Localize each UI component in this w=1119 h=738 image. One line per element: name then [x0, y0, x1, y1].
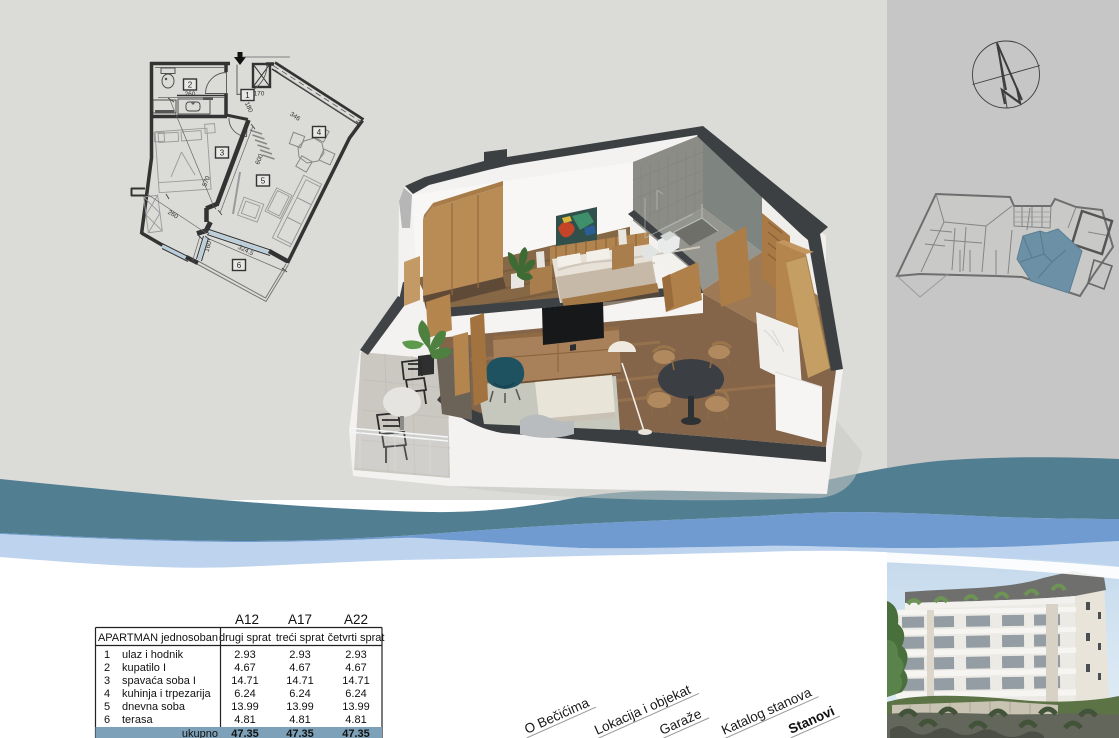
- svg-text:5: 5: [261, 177, 266, 186]
- svg-text:1: 1: [104, 649, 110, 661]
- svg-text:3: 3: [104, 675, 110, 687]
- svg-text:četvrti sprat: četvrti sprat: [328, 632, 385, 644]
- svg-text:13.99: 13.99: [231, 701, 259, 713]
- svg-text:6.24: 6.24: [234, 688, 255, 700]
- svg-text:4.67: 4.67: [289, 662, 310, 674]
- svg-text:A17: A17: [288, 612, 312, 627]
- svg-text:260: 260: [185, 91, 196, 98]
- svg-text:170: 170: [254, 91, 265, 98]
- svg-text:14.71: 14.71: [286, 675, 314, 687]
- svg-text:terasa: terasa: [122, 714, 153, 726]
- svg-text:47.35: 47.35: [286, 728, 314, 738]
- svg-text:4: 4: [317, 128, 322, 137]
- svg-text:ulaz i hodnik: ulaz i hodnik: [122, 649, 184, 661]
- svg-text:14.71: 14.71: [231, 675, 259, 687]
- svg-text:dnevna soba: dnevna soba: [122, 701, 186, 713]
- svg-text:6: 6: [237, 261, 242, 270]
- svg-text:kuhinja i trpezarija: kuhinja i trpezarija: [122, 688, 212, 700]
- svg-text:5: 5: [104, 701, 110, 713]
- svg-text:A22: A22: [344, 612, 368, 627]
- svg-text:4.67: 4.67: [234, 662, 255, 674]
- svg-text:6.24: 6.24: [289, 688, 310, 700]
- svg-text:14.71: 14.71: [342, 675, 370, 687]
- svg-text:4: 4: [104, 688, 110, 700]
- svg-text:4.81: 4.81: [234, 714, 255, 726]
- svg-text:4.81: 4.81: [345, 714, 366, 726]
- svg-text:47.35: 47.35: [342, 728, 370, 738]
- svg-text:13.99: 13.99: [342, 701, 370, 713]
- svg-text:47.35: 47.35: [231, 728, 259, 738]
- svg-text:3: 3: [220, 149, 225, 158]
- svg-text:APARTMAN jednosoban: APARTMAN jednosoban: [98, 632, 218, 644]
- svg-text:2.93: 2.93: [234, 649, 255, 661]
- svg-text:ukupno: ukupno: [182, 728, 218, 738]
- svg-text:2.93: 2.93: [345, 649, 366, 661]
- svg-text:treći sprat: treći sprat: [276, 632, 324, 644]
- svg-text:2: 2: [104, 662, 110, 674]
- svg-text:4.81: 4.81: [289, 714, 310, 726]
- svg-text:4.67: 4.67: [345, 662, 366, 674]
- svg-text:2.93: 2.93: [289, 649, 310, 661]
- svg-text:6: 6: [104, 714, 110, 726]
- svg-text:13.99: 13.99: [286, 701, 314, 713]
- svg-text:kupatilo I: kupatilo I: [122, 662, 166, 674]
- svg-text:2: 2: [188, 81, 193, 90]
- svg-text:6.24: 6.24: [345, 688, 366, 700]
- svg-text:spavaća soba I: spavaća soba I: [122, 675, 196, 687]
- svg-text:A12: A12: [235, 612, 259, 627]
- svg-text:1: 1: [245, 91, 250, 100]
- svg-text:drugi sprat: drugi sprat: [219, 632, 271, 644]
